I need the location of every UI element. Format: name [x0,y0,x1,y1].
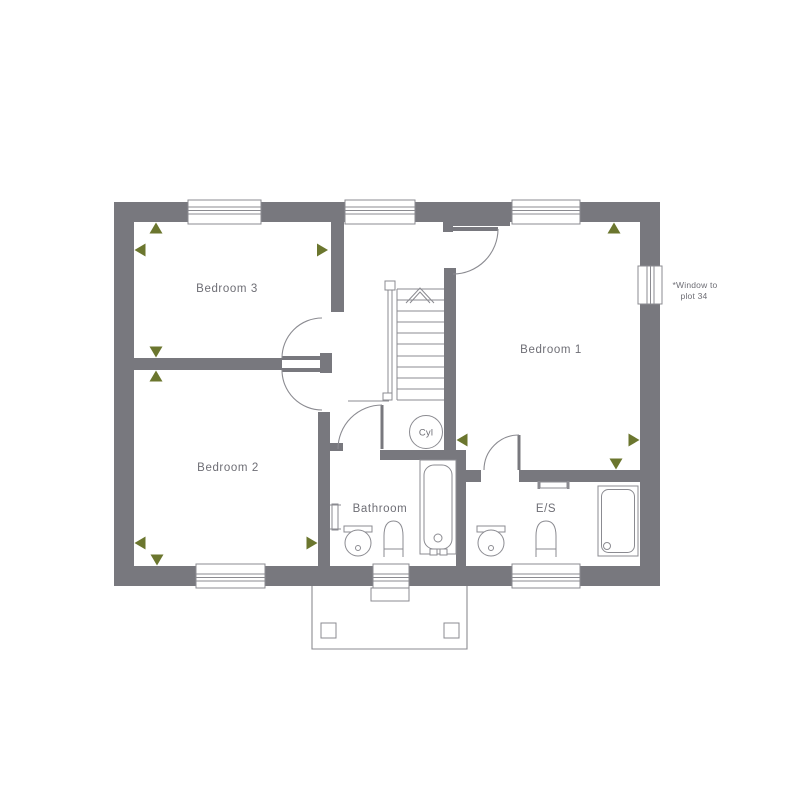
porch-canopy [312,586,467,649]
ensuite-toilet [536,521,556,557]
marker-left-icon [135,244,146,257]
marker-right-icon [307,537,318,550]
bathroom-radiator [330,504,341,530]
bath-tap [440,549,447,555]
bathroom-basin [344,526,372,556]
door-arc-bathroom [338,405,382,449]
door-bathroom [338,405,382,449]
porch-post [444,623,459,638]
shower-tray [598,486,638,556]
window-bathroom-south [373,564,409,588]
marker-up-icon [150,371,163,382]
shower-drain [604,543,611,550]
door-leaf-bedroom1 [453,227,498,231]
wall-bedroom1-door-lip [453,222,510,226]
wall-stairs-bedroom1 [444,268,456,452]
wall-bedroom1-door-stub [443,222,453,232]
door-arc-bedroom2 [282,370,322,410]
marker-up-icon [608,223,621,234]
wall-bedroom3-bedroom2 [134,358,282,370]
marker-up-icon [150,223,163,234]
entrance-step [371,588,409,601]
marker-right-icon [629,434,640,447]
window-note-line2: plot 34 [681,291,708,301]
wall-bedroom3-landing [331,222,344,312]
wall-ensuite-north-left [466,470,481,482]
cylinder-label: Cyl [419,428,433,439]
window-bedroom3-north [188,200,261,224]
window-ensuite-south [512,564,580,588]
room-label-bathroom: Bathroom [353,503,408,515]
bathroom-toilet [384,521,403,557]
wall-east [640,202,660,586]
ensuite-basin [477,526,505,556]
newel-post-top [385,281,395,290]
marker-down-icon [151,555,164,566]
wall-bedroom2-bathroom [318,412,330,566]
marker-down-icon [150,347,163,358]
bathtub [420,460,456,555]
marker-right-icon [317,244,328,257]
room-label-bedroom-2: Bedroom 2 [197,462,259,474]
room-label-bedroom-1: Bedroom 1 [520,344,582,356]
window-landing-north [345,200,415,224]
door-arc-bedroom1 [453,229,498,274]
ensuite-towel-radiator [538,481,570,489]
doors [282,227,519,470]
bath-drain [434,534,442,542]
window-note: *Window to plot 34 [673,280,718,301]
wall-ensuite-north-right [519,470,640,482]
wall-west [114,202,134,586]
room-label-bedroom-3: Bedroom 3 [196,283,258,295]
window-bedroom1-north [512,200,580,224]
marker-down-icon [610,459,623,470]
porch-post [321,623,336,638]
door-ensuite [484,435,519,470]
marker-left-icon [457,434,468,447]
door-bedroom3 [282,318,322,360]
window-bedroom1-east-plot34 [638,266,662,304]
window-bedroom2-south [196,564,265,588]
door-bedroom2 [282,368,322,410]
hot-water-cylinder: Cyl [410,416,443,449]
wall-bathroom-ensuite [456,450,466,566]
wall-bathroom-northwest [330,443,343,451]
door-leaf-bedroom2 [282,368,322,372]
bath-tap [430,549,437,555]
floor-plan: Cyl [0,0,800,800]
door-arc-bedroom3 [282,318,322,358]
staircase [348,281,444,401]
stairs-up-arrow-icon [406,288,434,303]
floor-plan-canvas: Cyl [0,0,800,800]
marker-left-icon [135,537,146,550]
door-leaf-bedroom3 [282,356,322,360]
wall-below-cylinder [380,450,466,460]
room-label-ensuite: E/S [536,503,556,515]
newel-post-bottom [383,393,392,400]
window-note-line1: *Window to [673,280,718,290]
door-bedroom1 [453,227,498,274]
door-arc-ensuite [484,435,519,470]
